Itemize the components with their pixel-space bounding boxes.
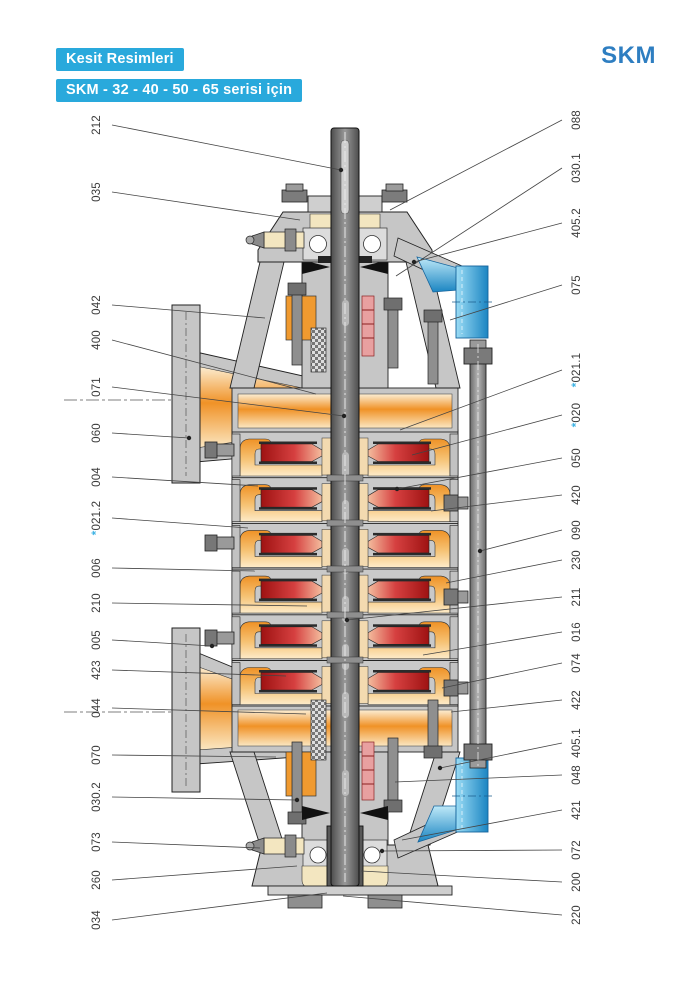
leader-line [112, 842, 260, 848]
leader-dot [187, 436, 191, 440]
part-label-020: *020 [571, 403, 583, 427]
series-badge: SKM - 32 - 40 - 50 - 65 serisi için [56, 79, 302, 102]
part-label-072: 072 [571, 840, 583, 860]
part-label-005: 005 [91, 630, 103, 650]
skm-logo: SKM [601, 42, 656, 70]
leader-dot [339, 168, 343, 172]
foot-bolts [288, 895, 402, 908]
leader-dot [438, 766, 442, 770]
title-badge: Kesit Resimleri [56, 48, 184, 71]
part-label-070: 070 [91, 745, 103, 765]
grease-nipple-top [246, 229, 304, 251]
part-label-075: 075 [571, 275, 583, 295]
leader-dot [210, 644, 214, 648]
part-label-212: 212 [91, 115, 103, 135]
leader-dot [342, 414, 346, 418]
part-label-073: 073 [91, 832, 103, 852]
leader-line [442, 663, 562, 688]
part-label-035: 035 [91, 182, 103, 202]
part-label-421: 421 [571, 800, 583, 820]
part-label-034: 034 [91, 910, 103, 930]
part-label-090: 090 [571, 520, 583, 540]
part-label-048: 048 [571, 765, 583, 785]
grease-nipple-bottom [246, 835, 304, 857]
part-label-071: 071 [91, 377, 103, 397]
leader-dot [395, 487, 399, 491]
part-label-006: 006 [91, 558, 103, 578]
leader-dot [478, 549, 482, 553]
part-label-004: 004 [91, 467, 103, 487]
leader-line [112, 518, 248, 528]
part-label-405.2: 405.2 [571, 208, 583, 238]
leader-dot [345, 618, 349, 622]
part-label-405.1: 405.1 [571, 728, 583, 758]
leader-line [480, 530, 562, 551]
part-label-211: 211 [571, 588, 583, 607]
part-label-030.2: 030.2 [91, 782, 103, 812]
leader-line [446, 560, 562, 583]
part-label-260: 260 [91, 870, 103, 890]
part-label-042: 042 [91, 295, 103, 315]
leader-dot [380, 849, 384, 853]
part-label-422: 422 [571, 690, 583, 710]
leader-line [451, 700, 562, 712]
part-label-044: 044 [91, 698, 103, 718]
part-label-200: 200 [571, 872, 583, 892]
pump-section-diagram: 212035042400071060004*021.20062100054230… [0, 0, 700, 990]
part-label-030.1: 030.1 [571, 153, 583, 183]
tie-rod [464, 340, 492, 768]
leader-line [112, 192, 300, 220]
leader-dot [295, 798, 299, 802]
shaft [327, 128, 363, 886]
part-label-220: 220 [571, 905, 583, 925]
part-label-230: 230 [571, 550, 583, 570]
part-label-400: 400 [91, 330, 103, 350]
part-label-021.2: *021.2 [91, 501, 103, 535]
part-label-050: 050 [571, 448, 583, 468]
leader-line [414, 223, 562, 262]
page: Kesit Resimleri SKM - 32 - 40 - 50 - 65 … [0, 0, 700, 990]
part-label-016: 016 [571, 622, 583, 642]
leader-line [112, 125, 341, 170]
part-label-420: 420 [571, 485, 583, 505]
part-label-088: 088 [571, 110, 583, 130]
part-label-210: 210 [91, 593, 103, 613]
part-label-074: 074 [571, 653, 583, 673]
part-label-423: 423 [91, 660, 103, 680]
leader-dot [412, 260, 416, 264]
part-label-021.1: *021.1 [571, 353, 583, 387]
part-label-060: 060 [91, 423, 103, 443]
leader-line [390, 120, 562, 210]
